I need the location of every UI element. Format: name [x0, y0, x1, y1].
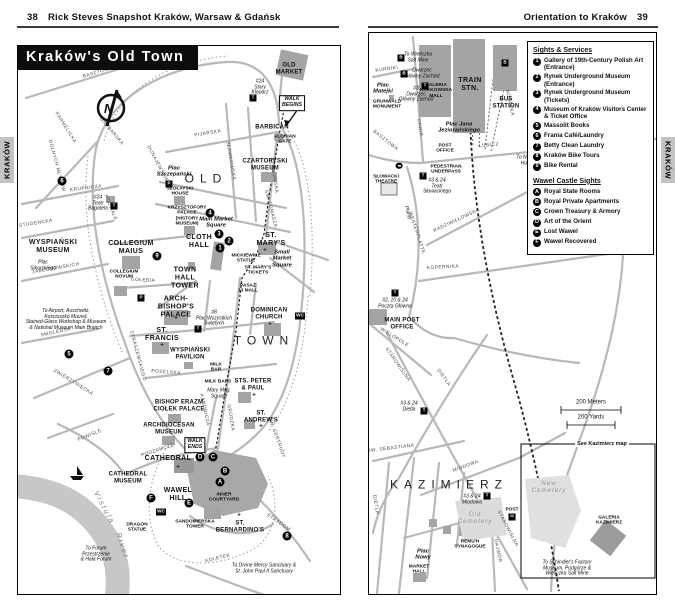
orientation-map: KURNIKIPAWIABASZTOWABOSACKALUBICZWESTERP… — [368, 32, 657, 595]
street-label: PIJARSKA — [194, 129, 222, 139]
legend-marker: 5 — [533, 122, 541, 130]
legend-sights-title: Sights & Services — [533, 47, 649, 54]
legend-marker: 7 — [533, 143, 541, 151]
map-label: Old Cemetery — [458, 512, 493, 526]
legend-item: 8 Kraków Bike Tours — [533, 152, 649, 161]
map-label: MILK BAR — [210, 363, 222, 374]
map-marker: 7 — [104, 367, 113, 376]
street-label: RADZIWIŁŁOWSKA — [433, 208, 481, 234]
map-label: + — [237, 511, 241, 518]
compass-icon: N — [89, 86, 133, 135]
map-label: WYSPIAŃSKI MUSEUM — [29, 239, 77, 255]
map-label: To Schindler's Factory Museum, Podgórze … — [542, 561, 591, 578]
map-marker: 9 — [153, 252, 162, 261]
legend-marker: 9 — [533, 163, 541, 171]
legend-wawel-title: Wawel Castle Sights — [533, 178, 649, 185]
street-label: LUBICZ — [479, 143, 499, 150]
legend-item-label: Crown Treasury & Armory — [544, 208, 620, 215]
map-label: Dworzec Główny Zachód — [405, 68, 440, 79]
map-label: ARCHDIOCESAN MUSEUM — [143, 422, 194, 435]
legend-item-label: Gallery of 19th-Century Polish Art (Entr… — [544, 57, 649, 72]
left-page-header: 38 Rick Steves Snapshot Kraków, Warsaw &… — [17, 6, 339, 28]
right-page-title: Orientation to Kraków — [524, 12, 627, 23]
map-label: To Divine Mercy Sanctuary & St. John Pau… — [232, 563, 296, 574]
map-label: + — [174, 314, 178, 321]
legend-item: 9 Bike Rental — [533, 162, 649, 171]
map-icon: T — [111, 203, 118, 210]
map-icon: T — [420, 173, 427, 180]
map-icon: WC — [295, 313, 305, 320]
left-edge-tab-krakow: KRAKÓW — [0, 137, 14, 183]
map-label: WALK BEGINS — [279, 95, 305, 111]
map-icon: T — [195, 326, 202, 333]
map-label: CATHEDRAL — [145, 455, 192, 463]
street-label: STAROWIŚLNA — [383, 347, 410, 383]
map-marker: 5 — [65, 350, 74, 359]
map-label: BUS STATION — [493, 96, 520, 109]
map-label: KAZIMIERZ — [390, 478, 508, 491]
map-label: MARKET HALL — [409, 565, 430, 576]
map-label: 200 Yards — [578, 415, 605, 422]
street-label: ŚW. SEBASTIANA — [368, 443, 415, 454]
map-label: #3 & 24 Miodowa — [462, 494, 482, 505]
map-icon: T — [484, 493, 491, 500]
street-label: KARMELICKA — [53, 111, 77, 144]
map-marker: 6 — [58, 177, 67, 186]
map-marker: 3 — [215, 230, 224, 239]
street-label: MIODOWA — [452, 460, 479, 474]
map-label: + — [259, 422, 263, 429]
legend-marker: 3 — [533, 90, 541, 98]
map-label: See Kazimierz map — [575, 441, 629, 447]
guidebook-spread: 38 Rick Steves Snapshot Kraków, Warsaw &… — [0, 0, 675, 600]
street-label: KOLETEK — [205, 553, 231, 564]
street-label: DIETLA — [435, 368, 451, 387]
map-label: To Airport, Auschwitz, Kościuszko Mound,… — [26, 309, 107, 331]
map-icon: T — [421, 408, 428, 415]
map-label: CLOTH HALL — [186, 234, 212, 250]
map-label: Plac Matejki — [373, 83, 393, 96]
legend-marker: 1 — [533, 58, 541, 66]
map-label: + — [252, 391, 256, 398]
legend-item: E Lost Wawel — [533, 228, 649, 237]
legend-item: C Crown Treasury & Armory — [533, 208, 649, 217]
legend-item-label: Betty Clean Laundry — [544, 142, 604, 149]
legend-marker: F — [533, 239, 541, 247]
map-label: COLLEGIUM MAIUS — [108, 240, 154, 256]
map-label: To Wieliczka Salt Mine — [404, 52, 432, 63]
map-label: River — [114, 532, 130, 561]
map-icon: WC — [156, 509, 166, 516]
street-label: POWIŚLE — [77, 429, 103, 443]
legend-item: 3 Rynek Underground Museum (Tickets) — [533, 89, 649, 104]
map-label: New Cemetery — [532, 481, 567, 495]
map-label: DRAGON STATUE — [126, 523, 147, 534]
legend-marker: C — [533, 208, 541, 216]
right-edge-tab-krakow: KRAKÓW — [661, 137, 675, 183]
map-label: MAIN POST OFFICE — [384, 317, 419, 330]
map-label: PASAŻ 13 MALL — [238, 284, 258, 295]
map-label: WYSPIAŃSKI PAVILION — [170, 347, 210, 360]
legend-item: 6 Frania Café/Laundry — [533, 132, 649, 141]
legend-item: 2 Rynek Underground Museum (Entrance) — [533, 73, 649, 88]
map-label: COLLEGIUM NOVUM — [110, 270, 139, 281]
map-label: MICKIEWICZ STATUE — [231, 254, 260, 265]
map-label: Plac Nowy — [415, 549, 430, 562]
map-label: Small Market Square — [272, 249, 292, 268]
map-title: Kraków's Old Town — [17, 45, 198, 70]
map-icon: T — [392, 290, 399, 297]
map-label: BARBICAN — [255, 125, 289, 132]
street-label: KRUPNICZA — [70, 184, 103, 193]
street-label: DIETLA — [371, 495, 380, 515]
map-label: + — [268, 320, 272, 327]
map-label: ●● — [396, 163, 403, 169]
legend-item: D Art of the Orient — [533, 218, 649, 227]
street-label: DAJWÓR — [492, 539, 502, 563]
map-marker: E — [185, 499, 194, 508]
map-icon: P — [166, 181, 173, 188]
street-label: PAWIA — [415, 119, 424, 137]
legend-item-label: Kraków Bike Tours — [544, 152, 600, 159]
legend-item: 1 Gallery of 19th-Century Polish Art (En… — [533, 57, 649, 72]
legend-item-label: Massolit Books — [544, 122, 589, 129]
map-icon: B — [401, 71, 408, 78]
map-label: #3 & 24 Teatr Słowackiego — [423, 179, 451, 196]
street-label: POSELSKA — [151, 369, 181, 376]
legend-item-label: Rynek Underground Museum (Tickets) — [544, 89, 649, 104]
map-label: + — [263, 246, 267, 253]
map-label: ST. MARY'S — [256, 232, 285, 248]
legend-item-label: Lost Wawel — [544, 228, 578, 235]
map-label: WALK ENDS — [184, 437, 205, 453]
map-icon: P — [138, 295, 145, 302]
map-label: GRUNWALD MONUMENT — [373, 100, 401, 111]
map-marker: B — [221, 467, 230, 476]
map-label: To Forum Przestrzenie & Hala Forum — [81, 547, 112, 564]
map-label: DOMINICAN CHURCH — [251, 307, 287, 320]
legend-marker: 8 — [533, 153, 541, 161]
left-page-number: 38 — [27, 12, 38, 23]
left-page-title: Rick Steves Snapshot Kraków, Warsaw & Gd… — [48, 12, 280, 23]
map-icon: T — [422, 83, 429, 90]
old-town-map: Kraków's Old Town N BASZTOWAKARMELICKAGA… — [17, 45, 341, 595]
map-label: TOWN — [234, 334, 294, 347]
map-label: INNER COURTYARD — [209, 493, 239, 504]
map-label: MILK BARS — [205, 379, 232, 384]
map-label: PEDESTRIAN UNDERPASS — [431, 165, 462, 176]
map-label: TOWN HALL TOWER — [171, 266, 199, 289]
map-marker: 4 — [206, 209, 215, 218]
legend-item-label: Rynek Underground Museum (Entrance) — [544, 73, 649, 88]
map-icon: B — [398, 55, 405, 62]
map-label: POST — [505, 507, 518, 512]
map-label: CATHEDRAL MUSEUM — [109, 471, 148, 484]
map-label: Planty — [402, 206, 411, 221]
map-label: ST. BERNARDINO'S — [216, 520, 265, 533]
legend-marker: E — [533, 229, 541, 237]
legend-item-label: Wawel Recovered — [544, 238, 596, 245]
legend-item-label: Royal State Rooms — [544, 188, 600, 195]
map-legend: Sights & Services 1 Gallery of 19th-Cent… — [527, 41, 654, 255]
map-icon: B — [502, 60, 509, 67]
map-label: SZOŁAYSKI HOUSE — [166, 187, 193, 198]
map-marker: 1 — [216, 244, 225, 253]
legend-item-label: Frania Café/Laundry — [544, 132, 604, 139]
legend-item-label: Bike Rental — [544, 162, 578, 169]
legend-marker: B — [533, 198, 541, 206]
map-label: #24 Teatr Bagatela — [88, 196, 108, 213]
map-marker: D — [196, 453, 205, 462]
map-label: Vistula — [92, 490, 116, 526]
street-label: BASZTOWA — [371, 129, 398, 152]
street-label: STRASZEWSKIEGO — [128, 330, 147, 382]
legend-wawel-list: A Royal State Rooms B Royal Private Apar… — [533, 188, 649, 247]
legend-sights-list: 1 Gallery of 19th-Century Polish Art (En… — [533, 57, 649, 171]
map-label: + — [176, 463, 180, 470]
street-label: STRADOM — [265, 513, 291, 533]
legend-item: 5 Massolit Books — [533, 122, 649, 131]
map-label: TRAIN STN. — [458, 77, 481, 93]
map-label: #3 & 24 Dietla — [400, 401, 417, 412]
right-page-number: 39 — [637, 12, 648, 23]
map-label: CZARTORYSKI MUSEUM — [242, 158, 287, 171]
old-town-labels: BASZTOWAKARMELICKAGARBARSKADUNAJEWSKIEGO… — [18, 46, 340, 594]
map-label: SŁOWACKI THEATRE — [373, 175, 399, 186]
map-marker: 2 — [225, 237, 234, 246]
map-label: FLORIAN GATE — [274, 135, 295, 146]
map-label: + — [160, 341, 164, 348]
right-page-header: Orientation to Kraków 39 — [368, 6, 658, 28]
legend-item-label: Museum of Kraków Visitors Center & Ticke… — [544, 106, 649, 121]
map-label: OLD MARKET — [276, 62, 303, 75]
map-label: Main Market Square — [199, 217, 233, 230]
legend-item: A Royal State Rooms — [533, 188, 649, 197]
map-label: Plac Szczepański — [157, 166, 191, 179]
map-icon: T — [250, 95, 257, 102]
map-label: Mary Mag. Square — [207, 388, 231, 399]
street-label: STUDENCKA — [19, 219, 54, 230]
map-label: 200 Meters — [576, 400, 606, 407]
map-icon: ✉ — [509, 514, 516, 521]
legend-marker: 4 — [533, 106, 541, 114]
map-label: BISHOP ERAZM CIOŁEK PALACE — [153, 399, 204, 412]
street-label: ŚW. TOMASZA — [262, 190, 277, 229]
map-marker: C — [209, 453, 218, 462]
legend-item: F Wawel Recovered — [533, 238, 649, 247]
legend-marker: A — [533, 188, 541, 196]
street-label: GRODZKA — [225, 404, 235, 432]
map-label: Plac Jana Jeziorańskiego — [438, 122, 480, 135]
map-marker: A — [216, 478, 225, 487]
legend-item-label: Royal Private Apartments — [544, 198, 619, 205]
legend-item: 4 Museum of Kraków Visitors Center & Tic… — [533, 106, 649, 121]
legend-item-label: Art of the Orient — [544, 218, 591, 225]
legend-item: 7 Betty Clean Laundry — [533, 142, 649, 151]
legend-item: B Royal Private Apartments — [533, 198, 649, 207]
map-marker: 8 — [283, 532, 292, 541]
legend-marker: 2 — [533, 74, 541, 82]
map-label: STS. PETER & PAUL — [234, 378, 271, 391]
legend-marker: D — [533, 219, 541, 227]
map-marker: F — [147, 494, 156, 503]
svg-text:N: N — [104, 101, 114, 116]
street-label: KOPERNIKA — [427, 264, 460, 271]
street-label: ZWIERZYNIECKA — [52, 369, 94, 398]
legend-marker: 6 — [533, 132, 541, 140]
map-label: ST. MARY'S TICKETS — [245, 266, 272, 277]
map-label: SANDOMIERSKA TOWER — [175, 520, 214, 531]
map-label: #2, 10 & 24 Poczta Główna — [378, 298, 412, 309]
map-label: Plac Sikorskiego — [30, 260, 56, 271]
map-label: REMU'H SYNAGOGUE — [454, 540, 485, 551]
map-label: POST OFFICE — [436, 144, 454, 155]
street-label: KURNIKI — [375, 66, 398, 75]
map-label: GALERIA KAZIMIERZ — [596, 516, 622, 527]
